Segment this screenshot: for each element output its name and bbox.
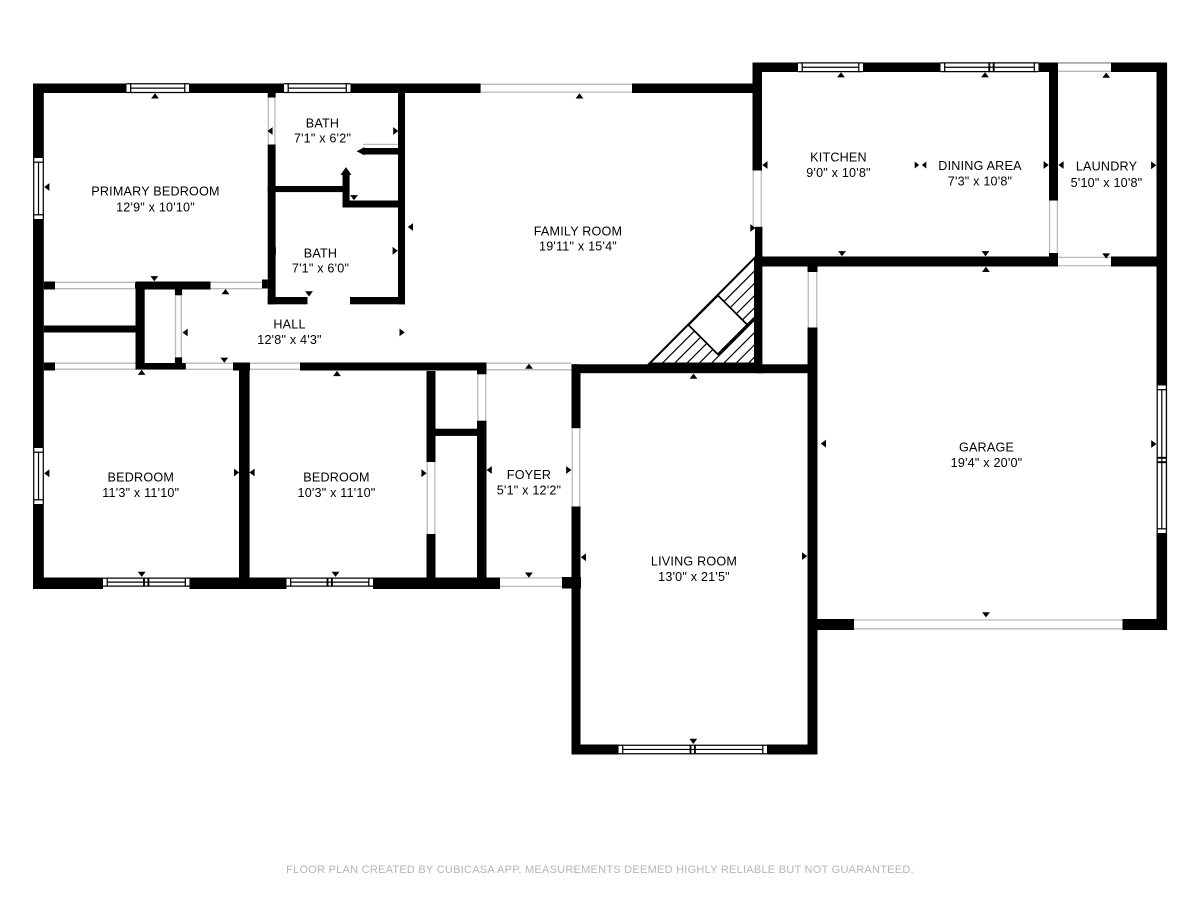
svg-text:PRIMARY BEDROOM: PRIMARY BEDROOM — [91, 185, 220, 199]
svg-text:BEDROOM: BEDROOM — [108, 471, 174, 485]
svg-text:FLOOR PLAN CREATED BY CUBICASA: FLOOR PLAN CREATED BY CUBICASA APP. MEAS… — [286, 864, 914, 876]
svg-text:5'10" x 10'8": 5'10" x 10'8" — [1071, 176, 1143, 190]
svg-text:7'1" x 6'0": 7'1" x 6'0" — [292, 262, 349, 276]
svg-text:BATH: BATH — [304, 247, 337, 261]
svg-text:HALL: HALL — [273, 318, 305, 332]
svg-text:13'0" x 21'5": 13'0" x 21'5" — [658, 570, 730, 584]
svg-text:DINING AREA: DINING AREA — [938, 159, 1022, 173]
svg-text:11'3" x 11'10": 11'3" x 11'10" — [102, 486, 179, 500]
svg-text:FOYER: FOYER — [507, 468, 551, 482]
svg-text:12'8" x 4'3": 12'8" x 4'3" — [257, 333, 321, 347]
svg-text:5'1" x 12'2": 5'1" x 12'2" — [497, 484, 561, 498]
svg-text:LAUNDRY: LAUNDRY — [1076, 160, 1138, 174]
svg-text:BATH: BATH — [306, 117, 339, 131]
svg-text:9'0" x 10'8": 9'0" x 10'8" — [806, 166, 870, 180]
svg-text:19'11" x 15'4": 19'11" x 15'4" — [539, 240, 617, 254]
svg-text:LIVING ROOM: LIVING ROOM — [651, 555, 737, 569]
svg-text:12'9" x 10'10": 12'9" x 10'10" — [116, 200, 195, 214]
svg-text:FAMILY ROOM: FAMILY ROOM — [534, 225, 623, 239]
svg-text:KITCHEN: KITCHEN — [810, 151, 867, 165]
svg-text:10'3" x 11'10": 10'3" x 11'10" — [298, 486, 376, 500]
svg-text:19'4" x 20'0": 19'4" x 20'0" — [951, 456, 1023, 470]
svg-text:7'3" x 10'8": 7'3" x 10'8" — [948, 175, 1012, 189]
svg-text:BEDROOM: BEDROOM — [303, 471, 369, 485]
svg-text:GARAGE: GARAGE — [959, 441, 1014, 455]
svg-text:7'1" x 6'2": 7'1" x 6'2" — [294, 132, 351, 146]
